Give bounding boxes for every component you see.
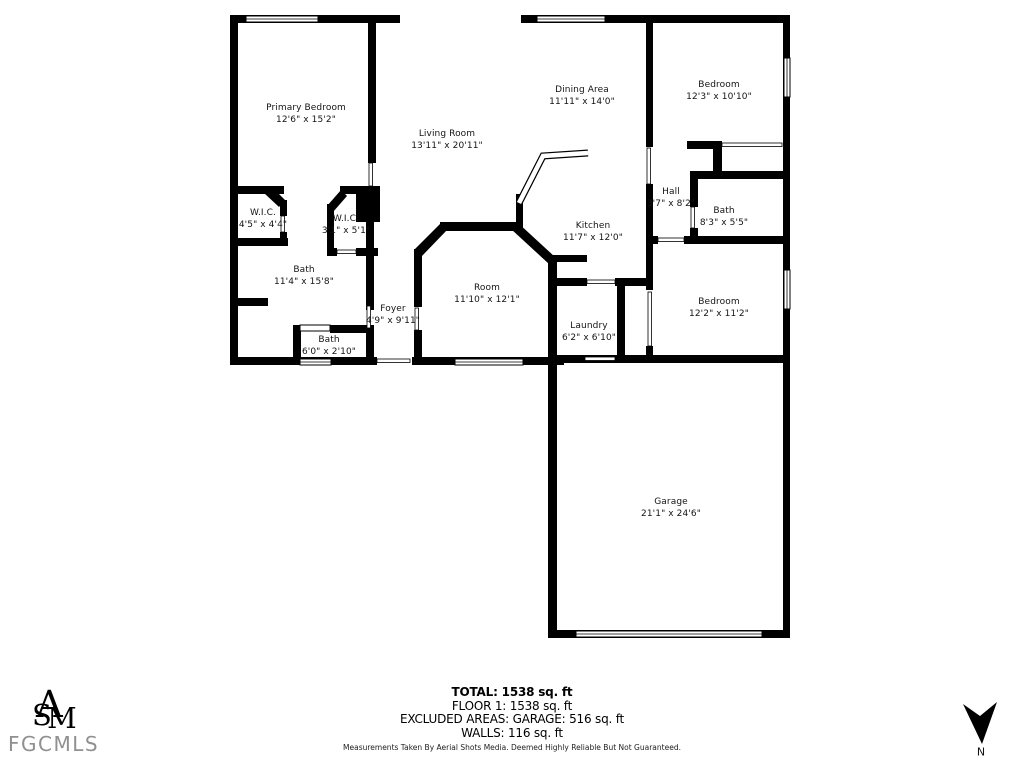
room-dims: 12'2" x 11'2" <box>689 308 749 320</box>
room-dims: 3'7" x 8'2" <box>647 198 695 210</box>
room-label-bedroom-1: Bedroom 12'3" x 10'10" <box>686 79 752 103</box>
room-dims: 12'6" x 15'2" <box>266 114 346 126</box>
room-dims: 3'1" x 5'1" <box>322 225 370 237</box>
total-area-text: TOTAL: 1538 sq. ft <box>0 686 1024 700</box>
room-name: Hall <box>647 186 695 198</box>
logo-monogram-m: M <box>47 704 77 733</box>
room-label-primary-bedroom: Primary Bedroom 12'6" x 15'2" <box>266 102 346 126</box>
room-label-bedroom-2: Bedroom 12'2" x 11'2" <box>689 296 749 320</box>
room-label-foyer: Foyer 4'9" x 9'11" <box>366 303 420 327</box>
floorplan-drawing <box>0 0 1024 768</box>
room-name: Bath <box>302 334 356 346</box>
room-label-garage: Garage 21'1" x 24'6" <box>641 496 701 520</box>
room-dims: 11'7" x 12'0" <box>563 232 623 244</box>
room-label-room: Room 11'10" x 12'1" <box>454 282 520 306</box>
room-dims: 11'11" x 14'0" <box>549 96 615 108</box>
room-dims: 6'0" x 2'10" <box>302 346 356 358</box>
logo-text: FGCMLS <box>8 732 99 756</box>
room-dims: 13'11" x 20'11" <box>411 140 483 152</box>
area-summary: TOTAL: 1538 sq. ft FLOOR 1: 1538 sq. ft … <box>0 686 1024 740</box>
room-label-wic-2: W.I.C. 3'1" x 5'1" <box>322 213 370 237</box>
room-label-laundry: Laundry 6'2" x 6'10" <box>562 320 616 344</box>
room-name: Garage <box>641 496 701 508</box>
room-name: Bath <box>274 264 334 276</box>
kitchen-counter <box>519 153 588 203</box>
room-name: Laundry <box>562 320 616 332</box>
room-name: Kitchen <box>563 220 623 232</box>
room-label-wic-1: W.I.C. 4'5" x 4'4" <box>239 207 287 231</box>
room-dims: 11'10" x 12'1" <box>454 294 520 306</box>
room-label-bath-1: Bath 8'3" x 5'5" <box>700 205 748 229</box>
room-name: Bedroom <box>689 296 749 308</box>
excluded-area-text: EXCLUDED AREAS: GARAGE: 516 sq. ft <box>0 713 1024 727</box>
room-label-dining-area: Dining Area 11'11" x 14'0" <box>549 84 615 108</box>
room-name: Primary Bedroom <box>266 102 346 114</box>
room-name: W.I.C. <box>322 213 370 225</box>
room-name: Bedroom <box>686 79 752 91</box>
room-dims: 8'3" x 5'5" <box>700 217 748 229</box>
room-label-kitchen: Kitchen 11'7" x 12'0" <box>563 220 623 244</box>
room-dims: 4'9" x 9'11" <box>366 315 420 327</box>
room-dims: 4'5" x 4'4" <box>239 219 287 231</box>
room-label-living-room: Living Room 13'11" x 20'11" <box>411 128 483 152</box>
room-name: Dining Area <box>549 84 615 96</box>
room-dims: 12'3" x 10'10" <box>686 91 752 103</box>
room-label-hall: Hall 3'7" x 8'2" <box>647 186 695 210</box>
room-dims: 21'1" x 24'6" <box>641 508 701 520</box>
floor1-area-text: FLOOR 1: 1538 sq. ft <box>0 700 1024 714</box>
room-name: Living Room <box>411 128 483 140</box>
room-name: Room <box>454 282 520 294</box>
floorplan-page: Primary Bedroom 12'6" x 15'2" Living Roo… <box>0 0 1024 768</box>
north-label: N <box>977 746 985 759</box>
room-name: Foyer <box>366 303 420 315</box>
company-logo: A S M FGCMLS <box>8 686 118 760</box>
room-dims: 11'4" x 15'8" <box>274 276 334 288</box>
walls-area-text: WALLS: 116 sq. ft <box>0 727 1024 741</box>
garage-door <box>576 631 762 637</box>
room-dims: 6'2" x 6'10" <box>562 332 616 344</box>
disclaimer-text: Measurements Taken By Aerial Shots Media… <box>0 743 1024 752</box>
room-label-bath-3: Bath 6'0" x 2'10" <box>302 334 356 358</box>
room-name: W.I.C. <box>239 207 287 219</box>
room-name: Bath <box>700 205 748 217</box>
room-label-bath-2: Bath 11'4" x 15'8" <box>274 264 334 288</box>
